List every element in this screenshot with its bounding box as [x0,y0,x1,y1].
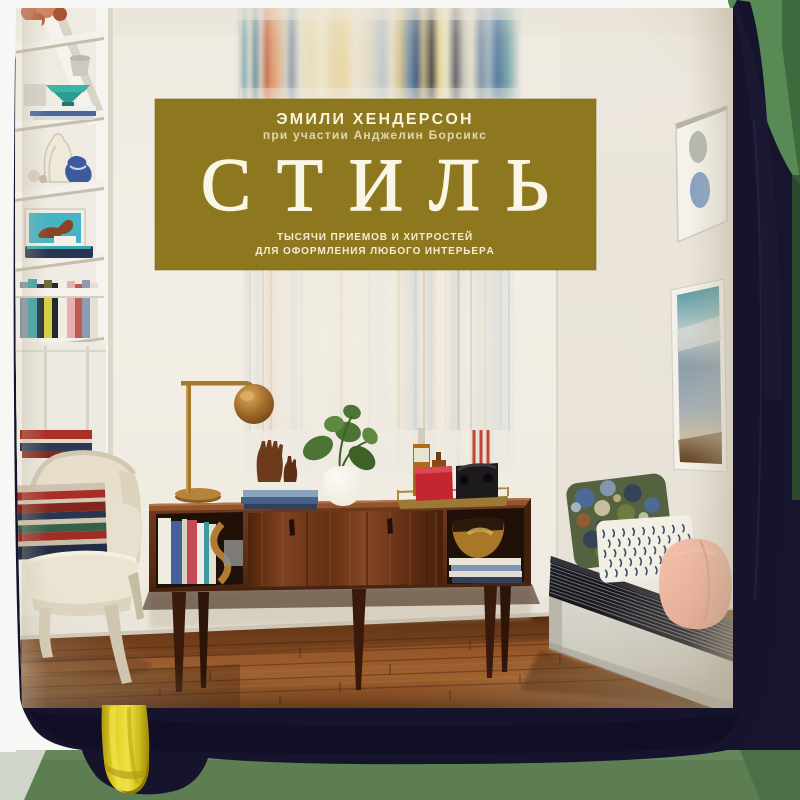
svg-text:СТИЛЬ: СТИЛЬ [201,144,575,227]
svg-text:при участии Анджелин Борсикс: при участии Анджелин Борсикс [263,128,487,142]
svg-text:ДЛЯ ОФОРМЛЕНИЯ ЛЮБОГО ИНТЕРЬЕР: ДЛЯ ОФОРМЛЕНИЯ ЛЮБОГО ИНТЕРЬЕРА [255,246,494,257]
svg-text:ТЫСЯЧИ ПРИЕМОВ И ХИТРОСТЕЙ: ТЫСЯЧИ ПРИЕМОВ И ХИТРОСТЕЙ [277,230,473,243]
svg-text:ЭМИЛИ ХЕНДЕРСОН: ЭМИЛИ ХЕНДЕРСОН [276,111,474,128]
